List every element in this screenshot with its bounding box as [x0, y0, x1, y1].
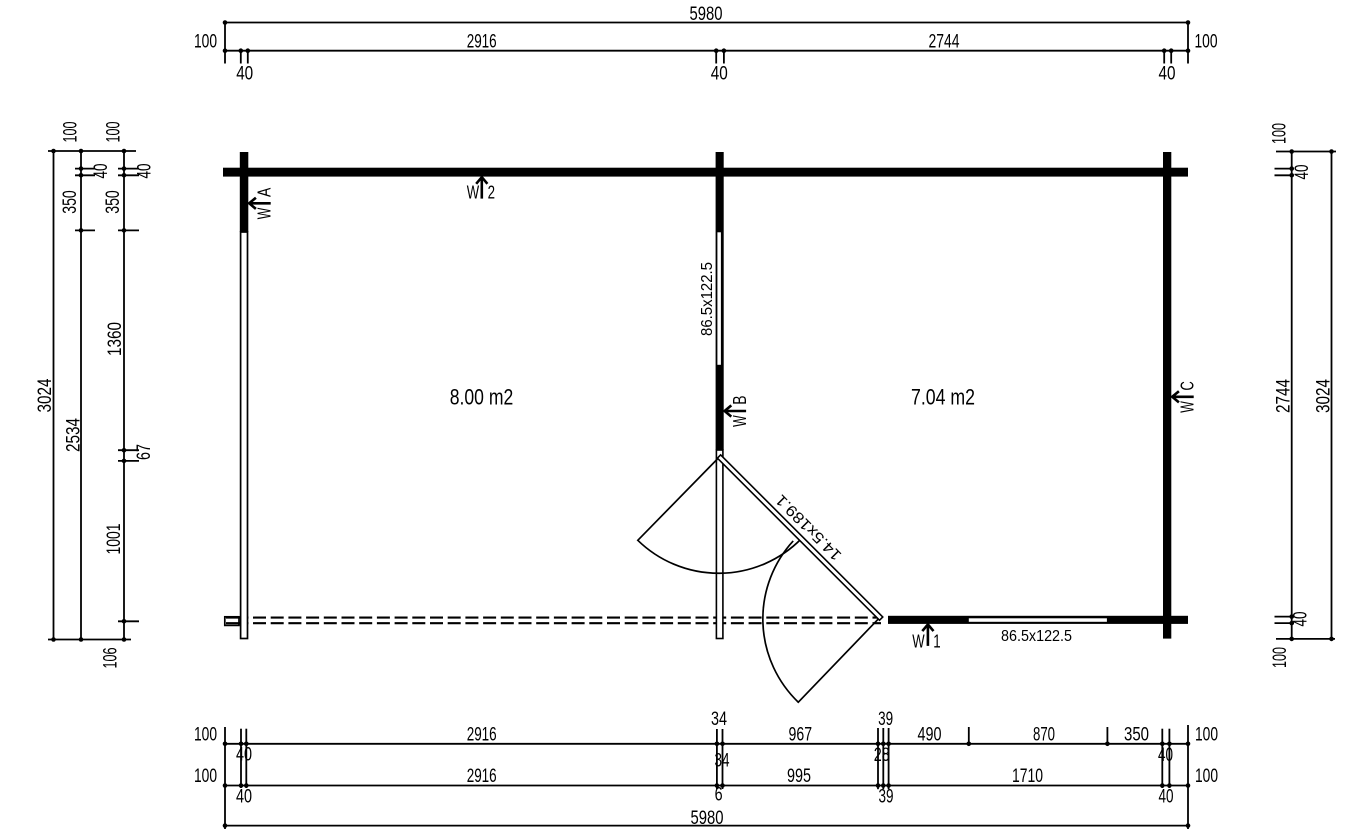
svg-text:40: 40 — [1292, 165, 1313, 180]
svg-text:2: 2 — [488, 183, 495, 203]
svg-text:40: 40 — [236, 786, 252, 807]
svg-text:350: 350 — [60, 190, 81, 214]
svg-text:1710: 1710 — [1012, 766, 1043, 787]
svg-text:8.00 m2: 8.00 m2 — [450, 385, 514, 410]
svg-text:W: W — [730, 415, 750, 427]
svg-text:967: 967 — [789, 724, 813, 745]
svg-text:40: 40 — [236, 63, 253, 84]
svg-text:86.5x122.5: 86.5x122.5 — [699, 262, 716, 336]
svg-text:6: 6 — [715, 784, 723, 805]
svg-text:39: 39 — [879, 786, 894, 807]
svg-text:34: 34 — [715, 751, 730, 772]
svg-text:40: 40 — [1158, 745, 1173, 766]
svg-text:100: 100 — [1270, 123, 1291, 144]
svg-text:86.5x122.5: 86.5x122.5 — [1001, 628, 1072, 645]
svg-text:40: 40 — [91, 164, 112, 179]
svg-text:W: W — [912, 632, 924, 652]
svg-text:W: W — [1178, 401, 1198, 413]
svg-text:2916: 2916 — [467, 766, 497, 787]
svg-text:1360: 1360 — [105, 322, 126, 356]
svg-text:3024: 3024 — [1314, 379, 1335, 413]
svg-text:40: 40 — [1291, 612, 1312, 627]
svg-text:350: 350 — [1124, 724, 1149, 745]
svg-text:67: 67 — [134, 444, 155, 460]
svg-text:5980: 5980 — [691, 808, 724, 829]
svg-text:106: 106 — [101, 648, 122, 669]
svg-text:40: 40 — [236, 744, 252, 765]
svg-text:W: W — [255, 208, 275, 220]
svg-text:350: 350 — [103, 190, 124, 214]
svg-text:5980: 5980 — [690, 4, 723, 25]
svg-text:100: 100 — [61, 122, 82, 143]
svg-text:100: 100 — [1195, 724, 1218, 745]
svg-text:C: C — [1178, 381, 1198, 390]
svg-text:2916: 2916 — [467, 31, 497, 52]
svg-text:995: 995 — [787, 766, 811, 787]
svg-text:34: 34 — [711, 709, 727, 730]
svg-text:1001: 1001 — [104, 524, 125, 555]
svg-text:100: 100 — [194, 31, 217, 52]
svg-text:7.04 m2: 7.04 m2 — [911, 385, 975, 410]
svg-text:2916: 2916 — [467, 724, 497, 745]
svg-text:1: 1 — [933, 632, 940, 652]
svg-text:490: 490 — [918, 724, 942, 745]
svg-text:40: 40 — [135, 164, 156, 179]
svg-text:100: 100 — [1270, 647, 1291, 668]
svg-text:40: 40 — [711, 63, 728, 84]
svg-text:3024: 3024 — [35, 378, 56, 412]
svg-text:100: 100 — [1195, 766, 1218, 787]
svg-text:2744: 2744 — [1274, 379, 1295, 413]
svg-text:B: B — [730, 395, 750, 404]
svg-text:2534: 2534 — [63, 418, 84, 452]
svg-text:A: A — [255, 188, 275, 197]
svg-text:39: 39 — [878, 709, 893, 730]
svg-text:100: 100 — [194, 766, 217, 787]
svg-text:28: 28 — [874, 745, 890, 766]
svg-text:2744: 2744 — [929, 31, 960, 52]
svg-text:100: 100 — [1195, 31, 1218, 52]
svg-text:100: 100 — [194, 724, 217, 745]
svg-text:W: W — [467, 183, 479, 203]
svg-text:40: 40 — [1159, 786, 1174, 807]
svg-text:100: 100 — [104, 122, 125, 143]
svg-text:40: 40 — [1159, 63, 1176, 84]
svg-text:870: 870 — [1033, 724, 1055, 745]
